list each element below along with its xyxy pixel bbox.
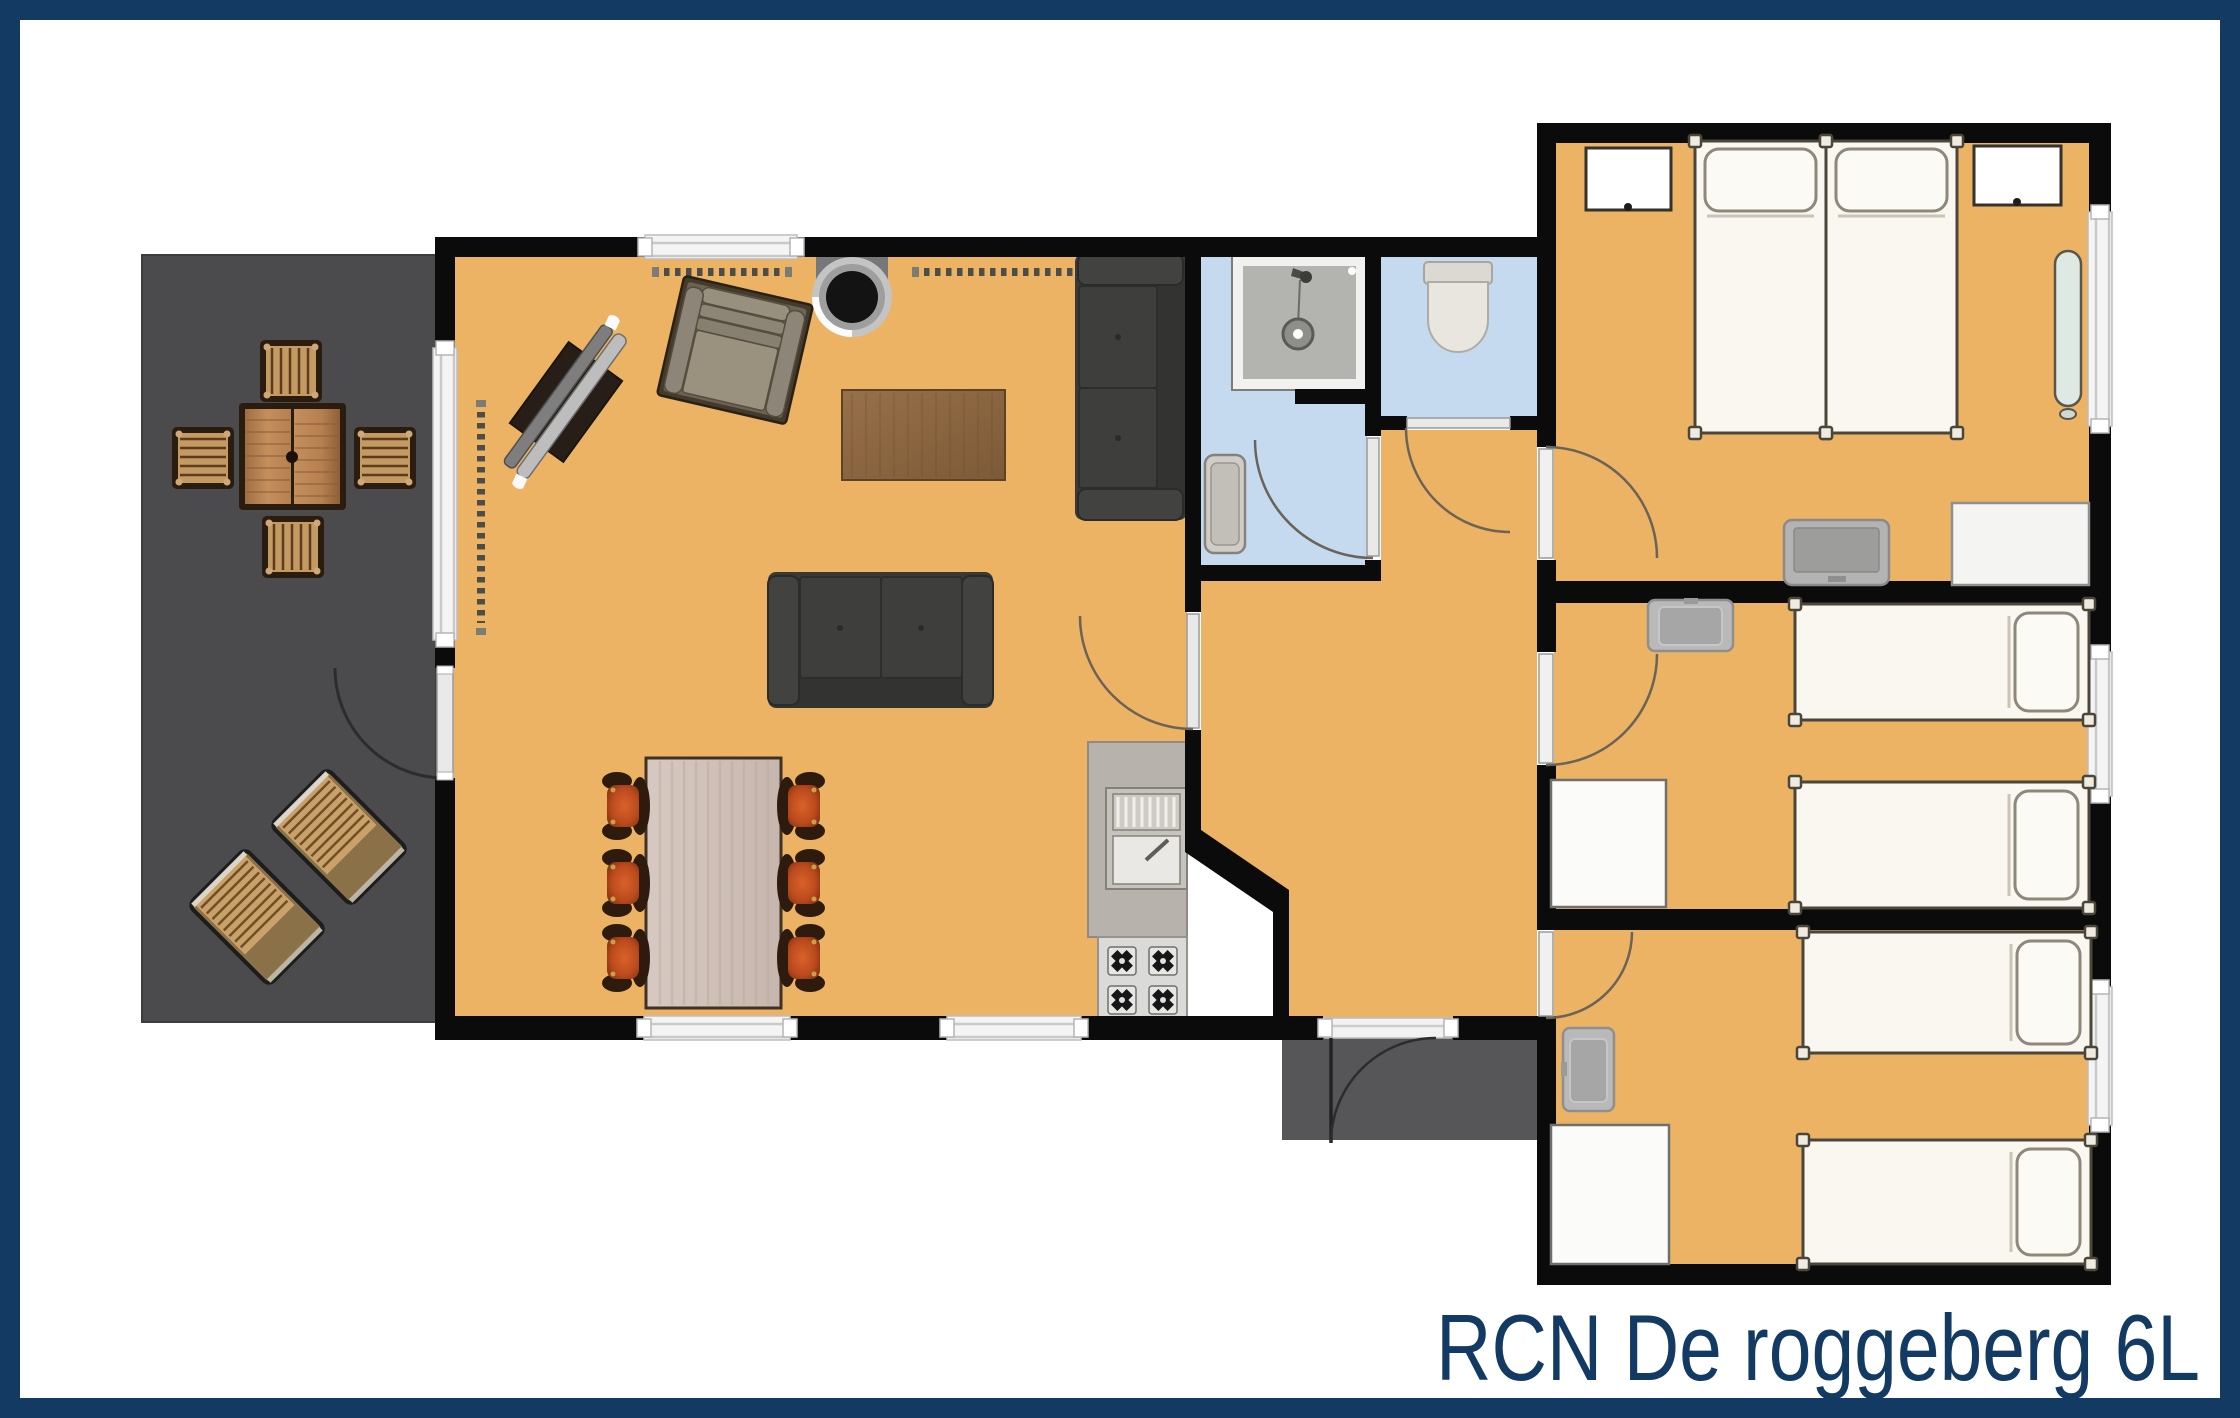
svg-text:RCN De roggeberg 6L: RCN De roggeberg 6L [1436,1295,2200,1400]
